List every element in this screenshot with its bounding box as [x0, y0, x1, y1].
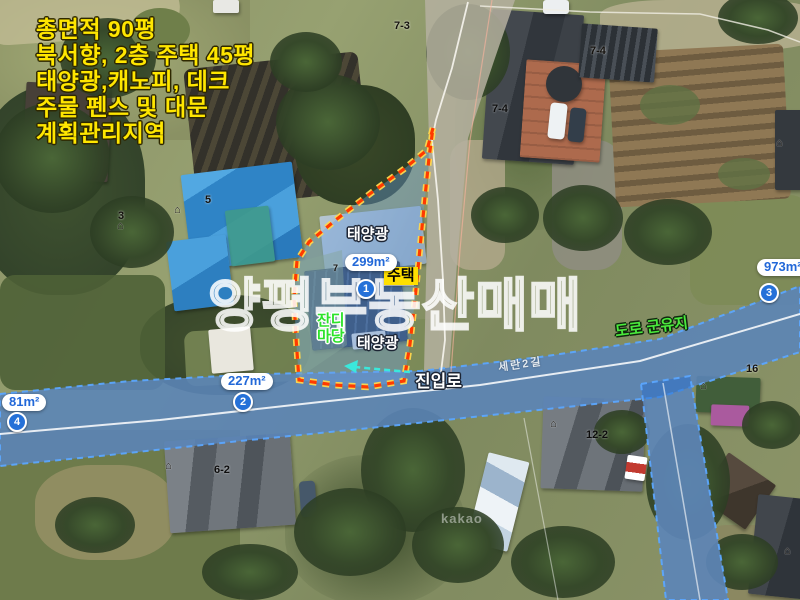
marker-number-2[interactable]: 2 — [233, 392, 253, 412]
parcel-number-16: 16 — [746, 363, 758, 375]
label-solar-bottom: 태양광 — [357, 336, 398, 352]
house-icon: ⌂ — [174, 205, 181, 216]
label-lawn-line2: 마당 — [317, 329, 345, 345]
area-marker-81[interactable]: 81m² — [2, 394, 46, 411]
parcel-number-7-4b: 7-4 — [492, 103, 508, 115]
info-line-features: 태양광,캐노피, 데크 — [36, 68, 255, 94]
house-icon: ⌂ — [165, 461, 172, 472]
house-icon: ⌂ — [700, 381, 707, 392]
area-marker-299[interactable]: 299m² — [345, 254, 397, 271]
area-marker-227[interactable]: 227m² — [221, 373, 273, 390]
label-solar-top: 태양광 — [347, 227, 388, 243]
parcel-number-6-2: 6-2 — [214, 464, 230, 476]
label-lawn-line1: 잔디 — [317, 313, 345, 329]
marker-number-1[interactable]: 1 — [356, 279, 376, 299]
marker-number-3[interactable]: 3 — [759, 283, 779, 303]
listing-info-overlay: 총면적 90평 북서향, 2층 주택 45평 태양광,캐노피, 데크 주물 펜스… — [36, 16, 255, 146]
info-line-total-area: 총면적 90평 — [36, 16, 255, 42]
area-marker-973[interactable]: 973m² — [757, 259, 800, 276]
info-line-zoning: 계획관리지역 — [36, 120, 255, 146]
house-icon: ⌂ — [776, 138, 783, 149]
parcel-number-5: 5 — [205, 194, 211, 206]
parcel-number-12-2: 12-2 — [586, 429, 608, 441]
house-icon: ⌂ — [117, 221, 124, 232]
label-access-road: 진입로 — [415, 373, 462, 391]
house-icon: ⌂ — [784, 546, 791, 557]
parcel-number-7: 7 — [333, 263, 338, 273]
info-line-fence: 주물 펜스 및 대문 — [36, 94, 255, 120]
parcel-number-7-4a: 7-4 — [590, 45, 606, 57]
marker-number-4[interactable]: 4 — [7, 412, 27, 432]
parcel-number-7-3: 7-3 — [394, 20, 410, 32]
info-line-orientation: 북서향, 2층 주택 45평 — [36, 42, 255, 68]
satellite-map-canvas[interactable]: 총면적 90평 북서향, 2층 주택 45평 태양광,캐노피, 데크 주물 펜스… — [0, 0, 800, 600]
house-icon: ⌂ — [550, 419, 557, 430]
map-provider-watermark: kakao — [441, 511, 483, 526]
